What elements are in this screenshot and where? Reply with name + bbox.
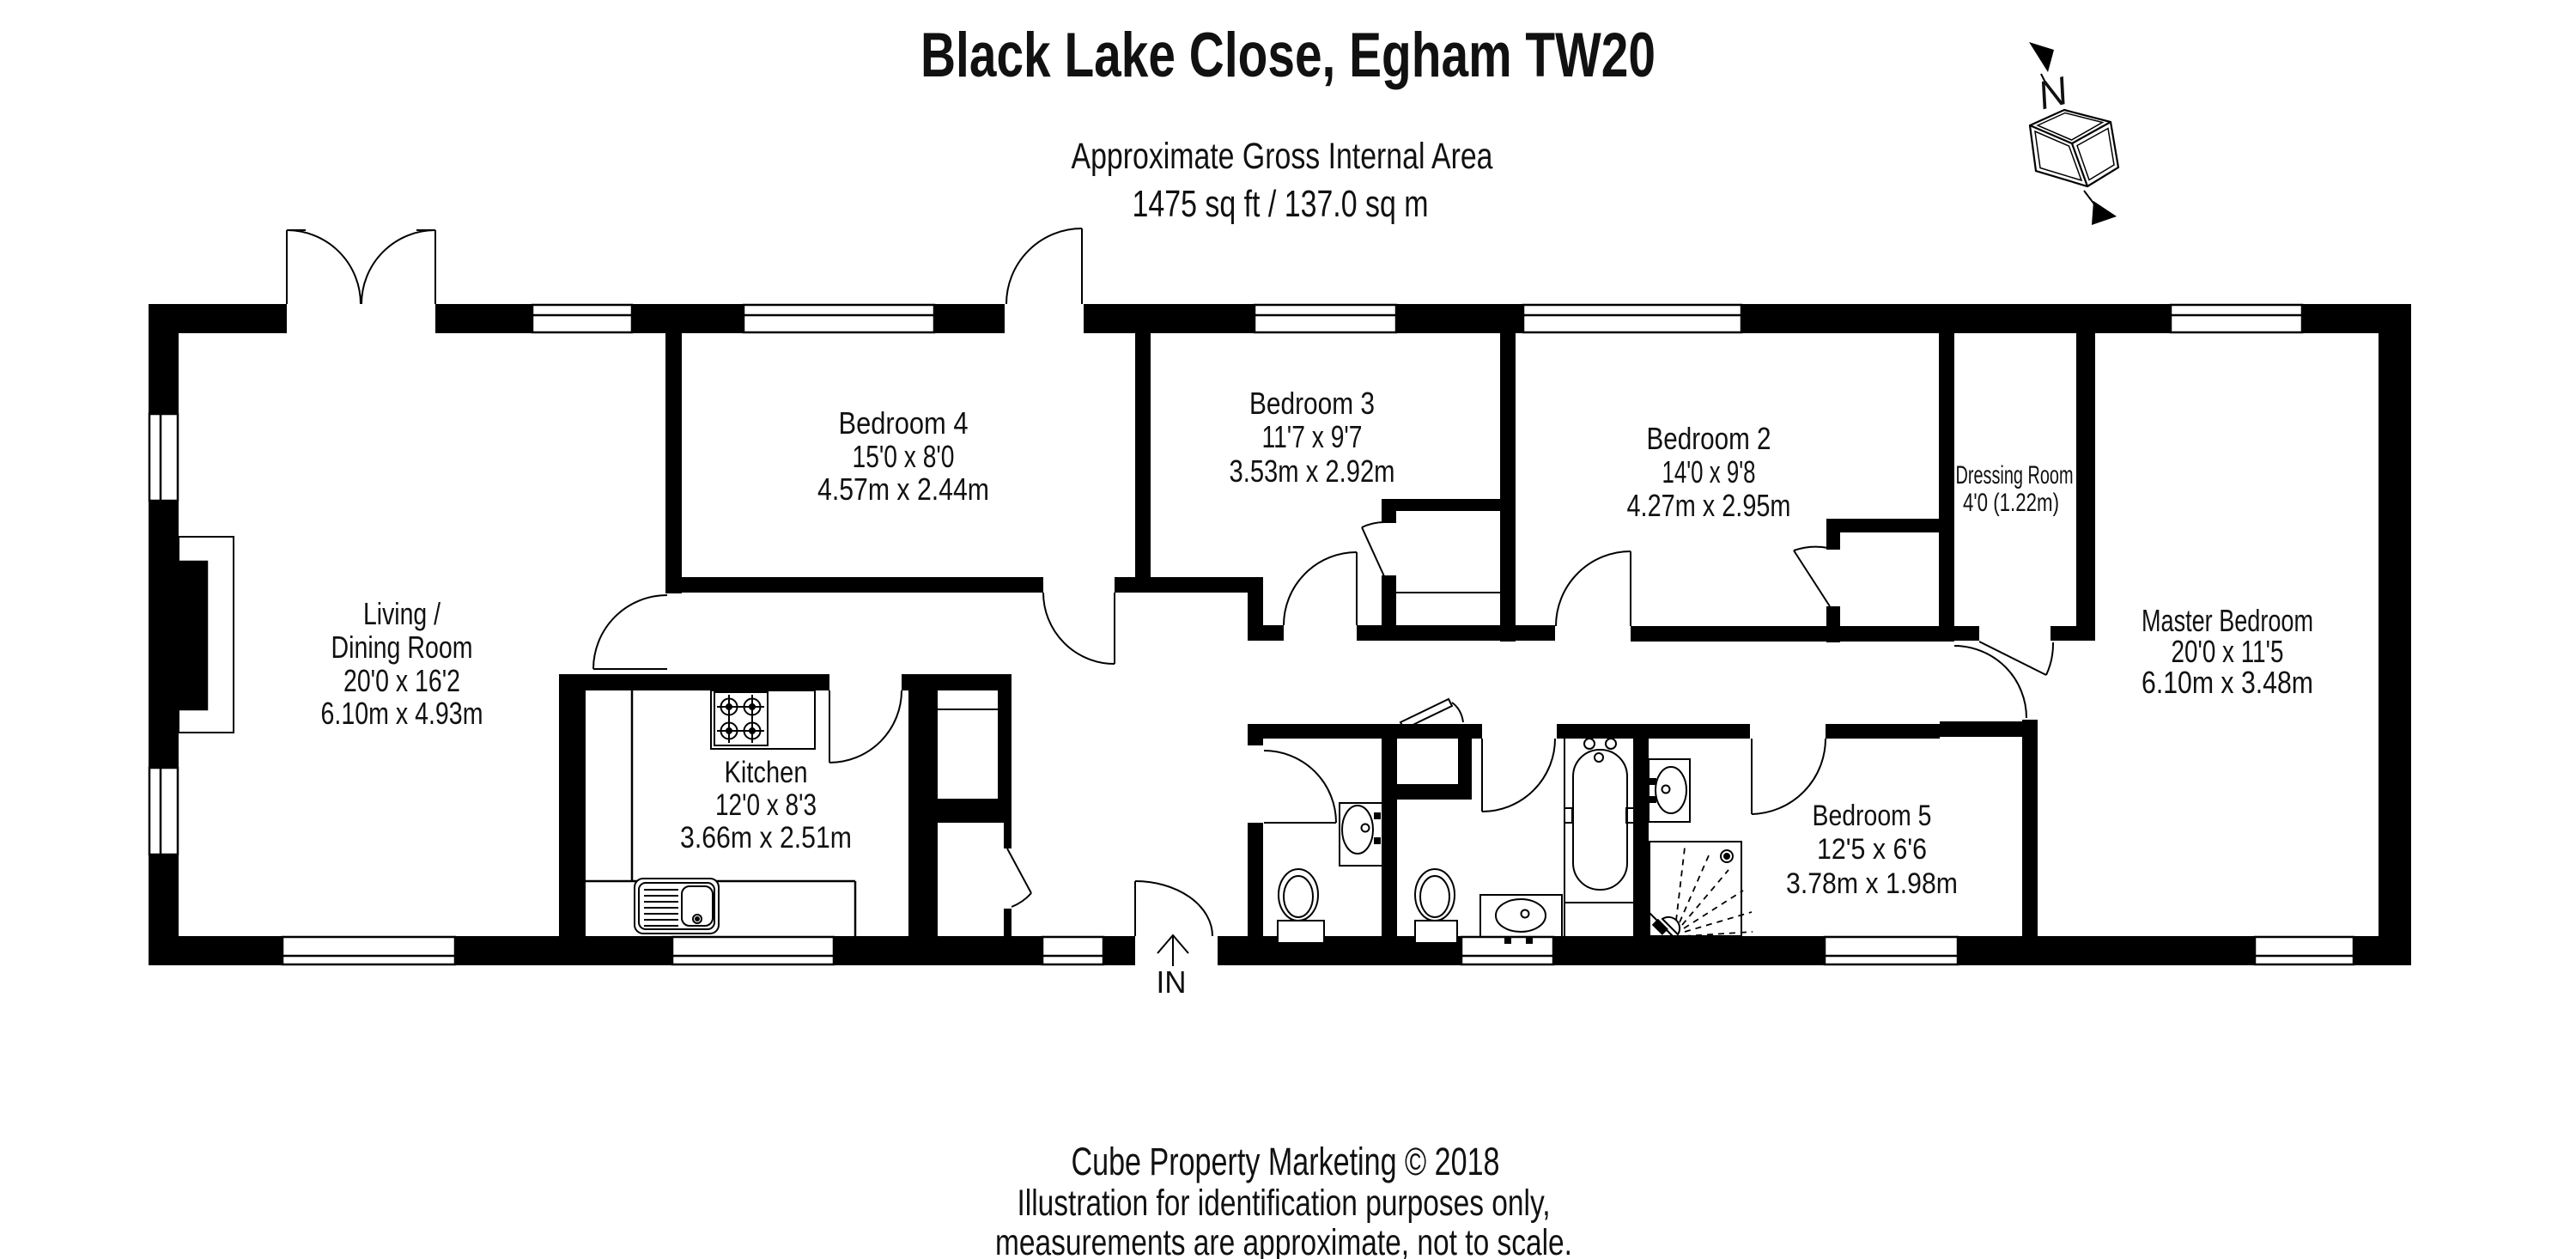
svg-text:4'0 (1.22m): 4'0 (1.22m) (1963, 489, 2059, 517)
svg-text:3.66m x 2.51m: 3.66m x 2.51m (680, 821, 852, 855)
svg-text:Black Lake Close, Egham TW20: Black Lake Close, Egham TW20 (920, 21, 1656, 90)
svg-text:14'0 x 9'8: 14'0 x 9'8 (1662, 454, 1756, 490)
svg-text:6.10m x 3.48m: 6.10m x 3.48m (2142, 665, 2313, 700)
svg-text:15'0 x 8'0: 15'0 x 8'0 (853, 439, 955, 474)
svg-text:measurements are approximate,: measurements are approximate, not to sca… (995, 1222, 1572, 1259)
svg-text:Living /: Living / (363, 596, 440, 631)
svg-text:1475 sq ft / 137.0 sq m: 1475 sq ft / 137.0 sq m (1133, 183, 1429, 225)
svg-text:3.78m x 1.98m: 3.78m x 1.98m (1786, 867, 1958, 900)
svg-text:20'0 x 11'5: 20'0 x 11'5 (2172, 634, 2284, 669)
svg-text:4.57m x 2.44m: 4.57m x 2.44m (817, 471, 989, 507)
svg-text:Dressing Room: Dressing Room (1956, 461, 2074, 490)
svg-text:Bedroom 3: Bedroom 3 (1249, 386, 1375, 421)
svg-text:4.27m x 2.95m: 4.27m x 2.95m (1627, 488, 1791, 523)
svg-text:Kitchen: Kitchen (725, 756, 808, 789)
svg-text:Bedroom 2: Bedroom 2 (1647, 421, 1771, 456)
svg-text:3.53m x 2.92m: 3.53m x 2.92m (1230, 453, 1395, 489)
svg-text:Dining Room: Dining Room (331, 629, 473, 665)
svg-text:Cube Property Marketing © 2018: Cube Property Marketing © 2018 (1072, 1140, 1500, 1183)
svg-text:Illustration for identificatio: Illustration for identification purposes… (1018, 1183, 1551, 1224)
svg-text:12'0 x 8'3: 12'0 x 8'3 (715, 788, 817, 822)
svg-text:IN: IN (1157, 964, 1187, 1000)
svg-text:Bedroom 5: Bedroom 5 (1813, 800, 1932, 832)
svg-text:20'0 x 16'2: 20'0 x 16'2 (343, 663, 460, 698)
svg-text:Approximate Gross Internal Are: Approximate Gross Internal Area (1072, 136, 1493, 177)
svg-text:6.10m x 4.93m: 6.10m x 4.93m (321, 696, 483, 731)
svg-text:12'5 x 6'6: 12'5 x 6'6 (1817, 833, 1927, 866)
svg-text:11'7 x 9'7: 11'7 x 9'7 (1262, 419, 1363, 454)
svg-text:Master Bedroom: Master Bedroom (2142, 603, 2313, 638)
svg-text:Bedroom 4: Bedroom 4 (839, 405, 969, 441)
